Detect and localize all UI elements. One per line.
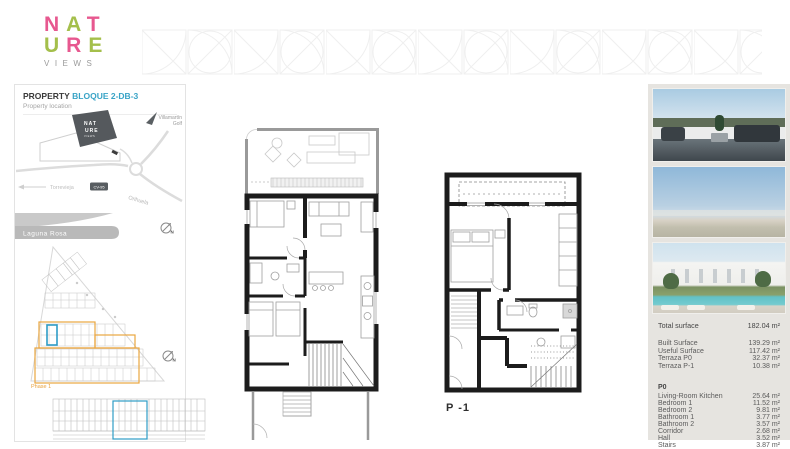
building-elevation [49, 391, 209, 441]
logo-line-2: URE [44, 35, 109, 56]
exterior-walls [247, 196, 376, 389]
plan-p-1-label: P -1 [446, 402, 470, 414]
logo-line-1: NAT [44, 14, 109, 35]
photo-terrace-view [652, 88, 786, 162]
floor-p0-header: P0 [658, 384, 780, 391]
nature-views-logo: NAT URE VIEWS [44, 14, 109, 68]
details-sidebar: Total surface 182.04 m² Built Surface139… [648, 84, 790, 440]
room-row: Hall3.52 m² [658, 435, 780, 442]
map-mini-logo-1: NAT [84, 121, 97, 127]
room-row: Bathroom 23.57 m² [658, 421, 780, 428]
entry-door-arc [253, 424, 267, 438]
room-row: Bathroom 13.77 m² [658, 414, 780, 421]
surface-row: Built Surface139.29 m² [658, 340, 780, 348]
property-panel: PROPERTY BLOQUE 2-DB-3 Property location… [14, 84, 186, 442]
block-code: BLOQUE 2-DB-3 [72, 91, 138, 101]
floor-plan-p0 [243, 126, 380, 440]
location-map: NAT URE VIEWS Villamartín Golf Torreviej… [16, 109, 184, 213]
map-mini-logo-3: VIEWS [84, 134, 95, 138]
logo-tagline: VIEWS [44, 59, 109, 68]
compass-icon: N [159, 219, 175, 235]
surface-row: Useful Surface117.42 m² [658, 348, 780, 356]
photo-exterior-pool-view [652, 242, 786, 314]
orihuela-label: Orihuela [127, 195, 150, 207]
site-plan: Phase 1 [17, 243, 181, 389]
floor-plan-p-1 [443, 170, 583, 410]
compass-icon: N [161, 347, 177, 363]
phase1-label: Phase 1 [31, 384, 51, 389]
golf-label: Golf [173, 121, 183, 127]
surface-row: Terraza P-110.38 m² [658, 363, 780, 371]
total-surface-value: 182.04 m² [748, 322, 780, 330]
terrace-door-arc [247, 129, 258, 139]
room-list: Living-Room Kitchen25.64 m² Bedroom 111.… [658, 393, 780, 449]
room-row: Stairs3.87 m² [658, 442, 780, 449]
decorative-pattern-band [142, 28, 762, 76]
terrace-furniture [265, 133, 369, 167]
surface-details: Total surface 182.04 m² Built Surface139… [658, 322, 780, 449]
entry-stairs [283, 392, 311, 416]
map-mini-logo-2: URE [85, 128, 99, 134]
room-row: Bedroom 111.52 m² [658, 400, 780, 407]
laguna-rosa-label: Laguna Rosa [23, 231, 67, 238]
total-surface-label: Total surface [658, 322, 699, 330]
golf-arrow-icon [146, 112, 157, 125]
torrevieja-label: Torrevieja [50, 185, 75, 191]
compass-n-label: N [171, 230, 174, 235]
compass-n-label: N [173, 358, 176, 363]
total-surface-row: Total surface 182.04 m² [658, 322, 780, 330]
elevation-unit-highlight [113, 401, 147, 439]
surface-row: Terraza P032.37 m² [658, 355, 780, 363]
lagoon-graphic: Laguna Rosa [15, 213, 135, 241]
room-row: Living-Room Kitchen25.64 m² [658, 393, 780, 400]
brochure-page: NAT URE VIEWS PROPERTY BLOQUE 2-DB-3 [0, 0, 790, 440]
left-arrow-icon [18, 185, 24, 190]
property-title: PROPERTY BLOQUE 2-DB-3 [23, 91, 177, 101]
torrevieja-direction: Torrevieja CV-95 [18, 183, 108, 192]
photo-stack [652, 88, 786, 318]
room-row: Bedroom 29.81 m² [658, 407, 780, 414]
pergola-strip [251, 178, 363, 187]
room-row: Corridor2.68 m² [658, 428, 780, 435]
road-badge-label: CV-95 [93, 185, 105, 190]
photo-panoramic-view [652, 166, 786, 238]
